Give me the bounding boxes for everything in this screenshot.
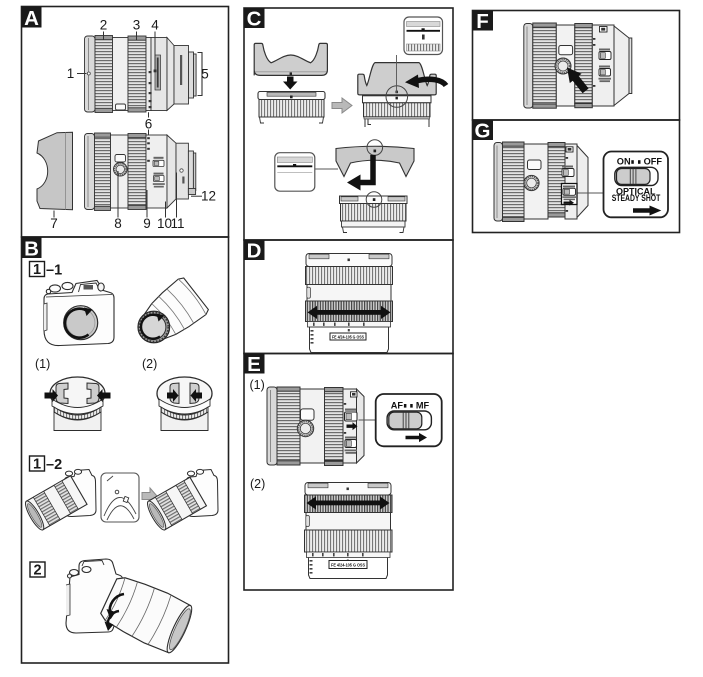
svg-text:–1: –1 <box>46 263 62 279</box>
svg-text:C: C <box>247 8 262 31</box>
svg-text:G: G <box>475 120 491 143</box>
svg-text:12: 12 <box>201 189 216 204</box>
svg-text:–2: –2 <box>46 457 62 473</box>
svg-text:(2): (2) <box>250 477 265 491</box>
svg-text:A: A <box>24 7 39 30</box>
svg-text:1: 1 <box>67 66 75 81</box>
svg-text:(2): (2) <box>142 357 157 371</box>
svg-text:AF: AF <box>391 400 404 410</box>
svg-text:ON: ON <box>617 157 631 167</box>
svg-text:F: F <box>476 10 489 33</box>
svg-text:STEADY SHOT: STEADY SHOT <box>612 193 661 203</box>
svg-text:5: 5 <box>201 67 209 82</box>
svg-text:7: 7 <box>50 216 58 231</box>
svg-text:6: 6 <box>145 117 153 132</box>
svg-text:OFF: OFF <box>644 157 663 167</box>
svg-text:9: 9 <box>143 216 151 231</box>
svg-text:FE 4/24-105 G OSS: FE 4/24-105 G OSS <box>331 563 365 568</box>
svg-text:D: D <box>247 240 262 263</box>
svg-text:(1): (1) <box>250 378 265 392</box>
svg-text:8: 8 <box>114 216 122 231</box>
svg-text:B: B <box>24 238 39 261</box>
svg-text:2: 2 <box>100 18 108 33</box>
svg-text:E: E <box>247 353 261 376</box>
svg-text:3: 3 <box>133 18 141 33</box>
svg-text:(1): (1) <box>35 357 50 371</box>
svg-text:4: 4 <box>151 18 159 33</box>
svg-text:MF: MF <box>416 400 430 410</box>
svg-text:FE 4/24-105 G OSS: FE 4/24-105 G OSS <box>332 335 364 340</box>
svg-text:11: 11 <box>170 216 184 231</box>
svg-text:1: 1 <box>33 457 41 473</box>
svg-text:2: 2 <box>33 563 41 579</box>
svg-text:1: 1 <box>33 262 41 278</box>
